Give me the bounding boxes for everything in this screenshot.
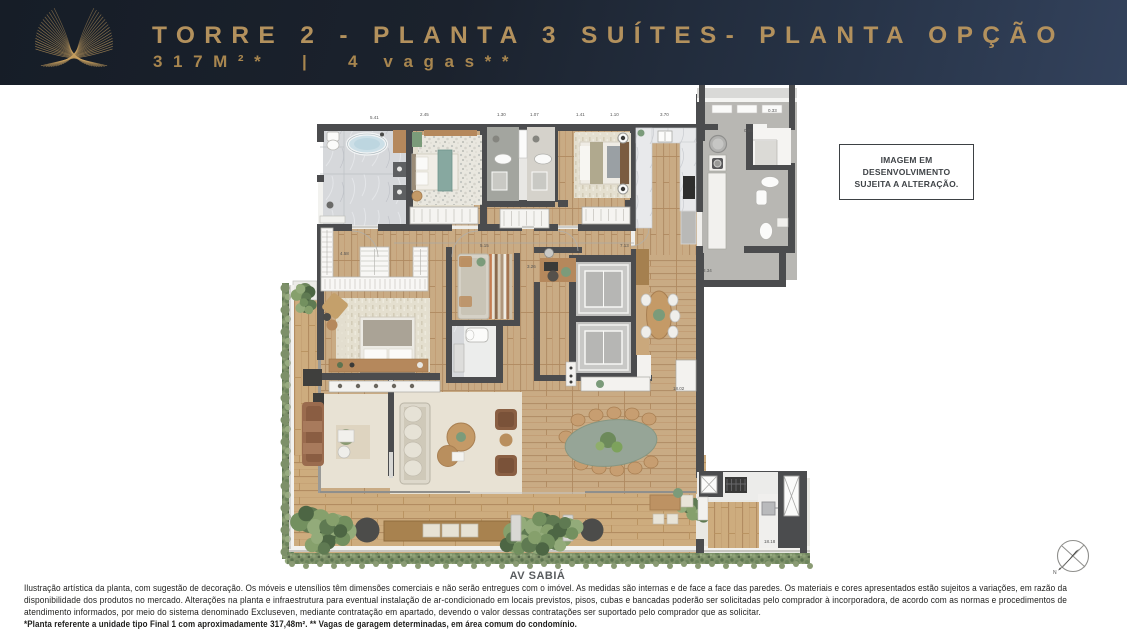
- svg-text:4.58: 4.58: [340, 251, 349, 256]
- svg-text:5.41: 5.41: [370, 115, 379, 120]
- svg-text:3.26: 3.26: [527, 264, 536, 269]
- svg-text:2.45: 2.45: [420, 112, 429, 117]
- svg-text:7.13: 7.13: [620, 243, 629, 248]
- svg-text:0.33: 0.33: [768, 108, 777, 113]
- svg-text:18.02: 18.02: [673, 386, 685, 391]
- svg-text:18.18: 18.18: [764, 539, 776, 544]
- svg-text:1.30: 1.30: [497, 112, 506, 117]
- svg-text:1.10: 1.10: [610, 112, 619, 117]
- svg-text:1.07: 1.07: [530, 112, 539, 117]
- svg-text:5.15: 5.15: [480, 243, 489, 248]
- svg-text:3.70: 3.70: [660, 112, 669, 117]
- svg-text:0.85: 0.85: [744, 128, 753, 133]
- svg-text:3.34: 3.34: [703, 268, 712, 273]
- svg-text:1.41: 1.41: [576, 112, 585, 117]
